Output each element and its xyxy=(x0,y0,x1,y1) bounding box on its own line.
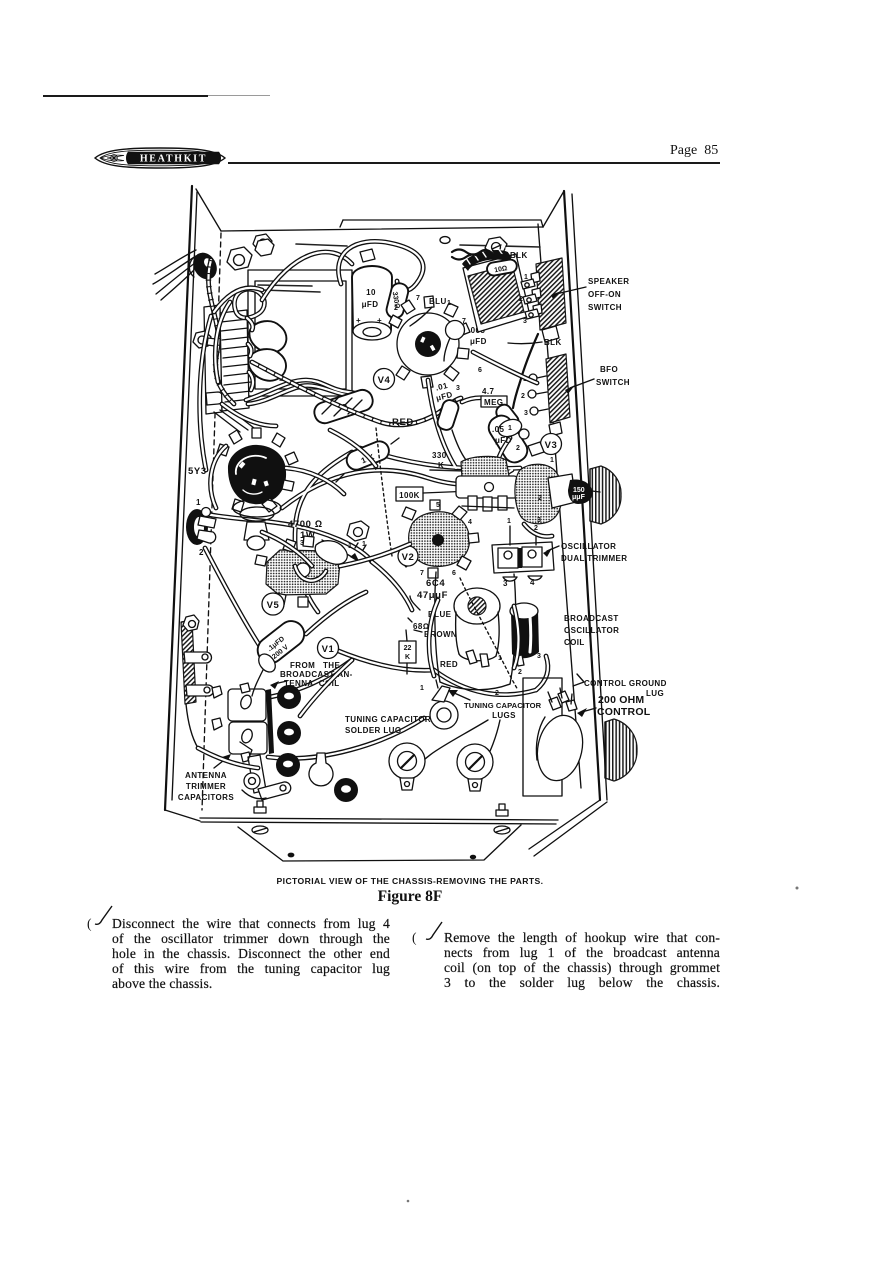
svg-text:SWITCH: SWITCH xyxy=(588,303,622,312)
svg-text:2: 2 xyxy=(538,495,542,502)
svg-text:22: 22 xyxy=(404,645,412,652)
svg-text:1: 1 xyxy=(524,274,528,281)
svg-text:ANTENNA: ANTENNA xyxy=(185,771,227,780)
svg-text:100K: 100K xyxy=(399,491,420,500)
svg-text:3: 3 xyxy=(537,517,541,524)
svg-text:CONTROL GROUND: CONTROL GROUND xyxy=(584,679,667,688)
svg-text:3: 3 xyxy=(456,385,460,392)
svg-text:3: 3 xyxy=(537,653,541,660)
svg-text:2: 2 xyxy=(394,305,398,312)
svg-text:6: 6 xyxy=(452,570,456,577)
svg-text:RED: RED xyxy=(440,660,458,669)
svg-text:OSCILLATOR: OSCILLATOR xyxy=(561,542,616,551)
svg-text:μμF: μμF xyxy=(572,494,586,501)
svg-text:K: K xyxy=(438,461,444,470)
svg-text:7: 7 xyxy=(420,570,424,577)
svg-text:DUAL TRIMMER: DUAL TRIMMER xyxy=(561,554,627,563)
svg-text:SOLDER LUG: SOLDER LUG xyxy=(345,726,401,735)
svg-text:OSCILLATOR: OSCILLATOR xyxy=(564,626,619,635)
svg-text:5Y3: 5Y3 xyxy=(188,466,207,477)
svg-text:7: 7 xyxy=(416,295,420,302)
svg-text:COIL: COIL xyxy=(564,638,585,647)
svg-text:200 OHM: 200 OHM xyxy=(598,694,644,706)
svg-text:1: 1 xyxy=(498,655,502,662)
svg-text:2: 2 xyxy=(519,296,523,303)
svg-text:μFD: μFD xyxy=(362,300,379,309)
svg-text:LUG: LUG xyxy=(646,689,664,698)
svg-text:BLU: BLU xyxy=(429,297,447,306)
svg-text:10: 10 xyxy=(366,288,376,297)
svg-text:BFO: BFO xyxy=(600,365,618,374)
svg-text:+: + xyxy=(356,316,361,325)
svg-text:TUNING CAPACITOR: TUNING CAPACITOR xyxy=(464,701,542,710)
svg-text:LUGS: LUGS xyxy=(492,711,516,720)
svg-text:6C4: 6C4 xyxy=(426,578,445,589)
svg-text:.05: .05 xyxy=(492,425,504,434)
svg-text:SPEAKER: SPEAKER xyxy=(588,277,629,286)
svg-text:4700 Ω: 4700 Ω xyxy=(288,519,323,530)
svg-text:3: 3 xyxy=(524,410,528,417)
svg-text:CAPACITORS: CAPACITORS xyxy=(178,793,234,802)
svg-text:1: 1 xyxy=(447,300,451,307)
svg-text:4.7: 4.7 xyxy=(482,387,494,396)
svg-text:3: 3 xyxy=(503,579,508,588)
svg-text:2: 2 xyxy=(521,393,525,400)
svg-text:V5: V5 xyxy=(267,600,280,611)
svg-text:1: 1 xyxy=(420,685,424,692)
svg-text:V1: V1 xyxy=(322,644,335,655)
svg-text:2: 2 xyxy=(516,445,520,452)
svg-text:4: 4 xyxy=(530,578,535,587)
svg-text:4: 4 xyxy=(468,519,472,526)
svg-text:1: 1 xyxy=(362,541,366,548)
svg-text:V3: V3 xyxy=(545,440,558,451)
svg-text:47μμF: 47μμF xyxy=(417,590,448,601)
svg-text:V4: V4 xyxy=(378,375,391,386)
svg-text:3: 3 xyxy=(300,540,304,547)
svg-text:BROADCAST: BROADCAST xyxy=(564,614,619,623)
svg-text:2: 2 xyxy=(518,669,522,676)
svg-text:CONTROL: CONTROL xyxy=(597,706,651,718)
svg-text:BLK: BLK xyxy=(544,338,562,347)
svg-text:BLK: BLK xyxy=(510,251,528,260)
svg-text:FROM THE: FROM THE xyxy=(290,661,340,670)
svg-text:+: + xyxy=(377,316,382,325)
svg-text:5: 5 xyxy=(436,502,440,509)
svg-text:1: 1 xyxy=(196,498,201,507)
svg-text:150: 150 xyxy=(573,487,585,494)
svg-text:3: 3 xyxy=(523,318,527,325)
svg-text:μFD: μFD xyxy=(495,436,512,445)
svg-text:μFD: μFD xyxy=(470,337,487,346)
svg-text:1: 1 xyxy=(507,518,511,525)
svg-text:1: 1 xyxy=(508,425,512,432)
svg-text:2: 2 xyxy=(199,548,204,557)
svg-text:RED: RED xyxy=(392,417,414,428)
svg-text:1: 1 xyxy=(348,543,352,550)
svg-text:TRIMMER: TRIMMER xyxy=(186,782,226,791)
svg-text:1: 1 xyxy=(550,457,554,464)
svg-text:TUNING CAPACITOR: TUNING CAPACITOR xyxy=(345,715,431,724)
svg-text:2: 2 xyxy=(495,690,499,697)
svg-text:OFF-ON: OFF-ON xyxy=(588,290,621,299)
svg-text:330: 330 xyxy=(432,451,447,460)
svg-text:K: K xyxy=(405,654,410,661)
svg-text:V2: V2 xyxy=(402,552,415,563)
svg-text:SWITCH: SWITCH xyxy=(596,378,630,387)
svg-text:6: 6 xyxy=(478,367,482,374)
